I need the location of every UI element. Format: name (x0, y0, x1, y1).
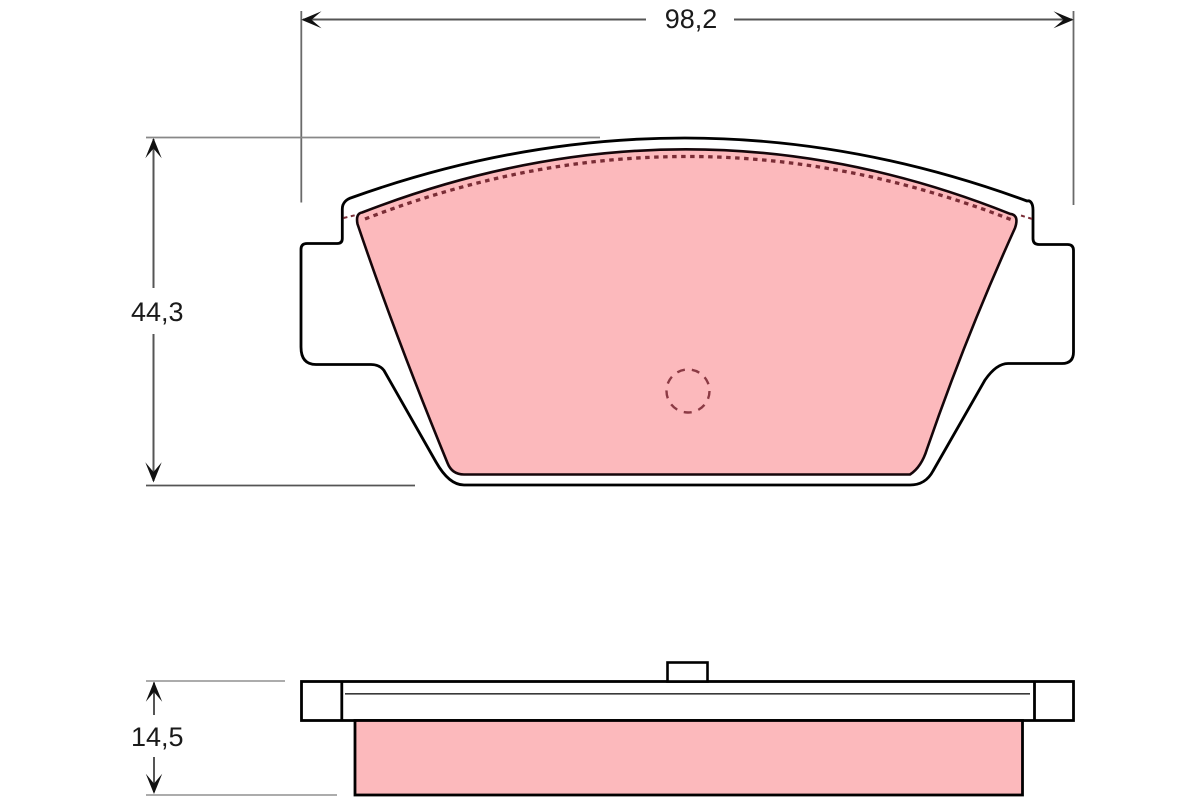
svg-text:14,5: 14,5 (131, 722, 184, 752)
svg-text:44,3: 44,3 (131, 297, 184, 327)
svg-text:98,2: 98,2 (665, 4, 718, 34)
